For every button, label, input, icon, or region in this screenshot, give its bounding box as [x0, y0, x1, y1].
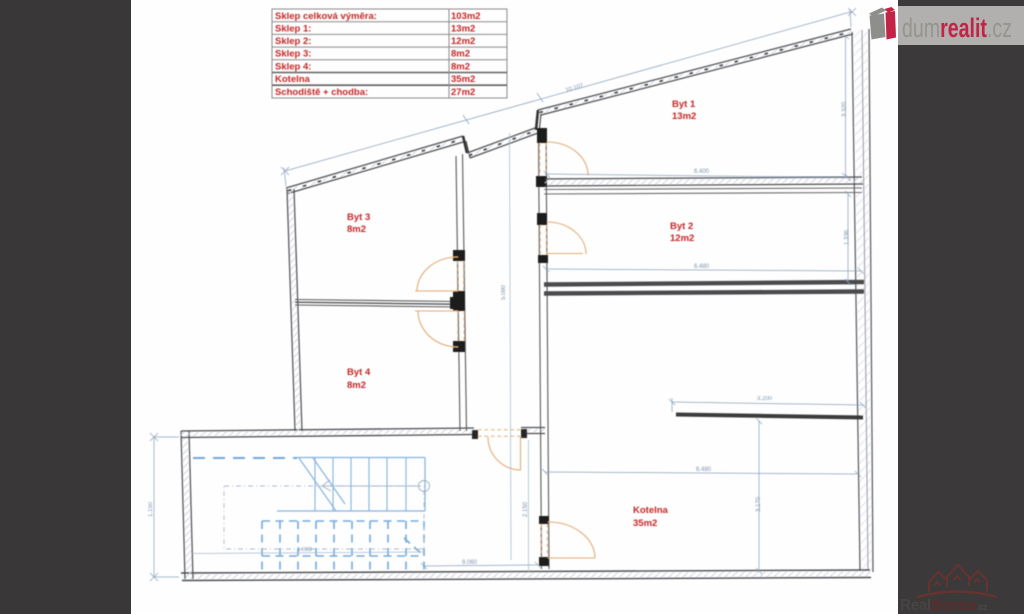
svg-text:13m2: 13m2: [672, 111, 696, 122]
svg-text:8m2: 8m2: [347, 224, 366, 235]
svg-text:35m2: 35m2: [451, 74, 475, 85]
svg-text:3.320: 3.320: [842, 101, 848, 117]
svg-text:Byt 1: Byt 1: [672, 99, 696, 110]
svg-text:Byt 3: Byt 3: [347, 212, 370, 223]
svg-text:8m2: 8m2: [347, 380, 366, 391]
svg-text:Byt 4: Byt 4: [347, 367, 371, 378]
svg-text:6.480: 6.480: [696, 467, 712, 473]
svg-text:1.088: 1.088: [297, 547, 313, 553]
svg-text:3.200: 3.200: [757, 396, 773, 402]
svg-text:103m2: 103m2: [451, 11, 481, 22]
svg-text:6.480: 6.480: [694, 264, 710, 270]
svg-text:Kotelna: Kotelna: [633, 505, 669, 516]
svg-text:Kotelna: Kotelna: [275, 74, 311, 85]
svg-text:35m2: 35m2: [633, 518, 657, 529]
svg-text:5.080: 5.080: [501, 284, 507, 300]
svg-text:27m2: 27m2: [451, 87, 475, 98]
svg-text:1.150: 1.150: [148, 501, 154, 517]
svg-text:Sklep 4:: Sklep 4:: [275, 62, 311, 73]
svg-text:9.060: 9.060: [462, 560, 478, 566]
svg-text:12m2: 12m2: [670, 233, 694, 244]
svg-text:13m2: 13m2: [451, 24, 475, 35]
svg-text:12m2: 12m2: [451, 36, 475, 47]
svg-text:3.170: 3.170: [756, 496, 762, 512]
svg-text:2.150: 2.150: [523, 501, 529, 517]
svg-text:8m2: 8m2: [451, 49, 470, 60]
svg-text:6.400: 6.400: [694, 169, 710, 175]
svg-text:Sklep celková výměra:: Sklep celková výměra:: [275, 11, 377, 22]
svg-text:Sklep 2:: Sklep 2:: [275, 36, 311, 47]
svg-text:1.336: 1.336: [845, 229, 851, 245]
svg-text:Schodiště + chodba:: Schodiště + chodba:: [275, 87, 368, 98]
svg-text:8m2: 8m2: [451, 62, 470, 73]
svg-text:RealBonus.cz: RealBonus.cz: [900, 597, 988, 614]
svg-text:Sklep 1:: Sklep 1:: [275, 24, 311, 35]
svg-text:dumrealit.cz: dumrealit.cz: [902, 13, 1012, 43]
svg-text:Sklep 3:: Sklep 3:: [275, 49, 311, 60]
svg-text:Byt 2: Byt 2: [670, 221, 693, 232]
